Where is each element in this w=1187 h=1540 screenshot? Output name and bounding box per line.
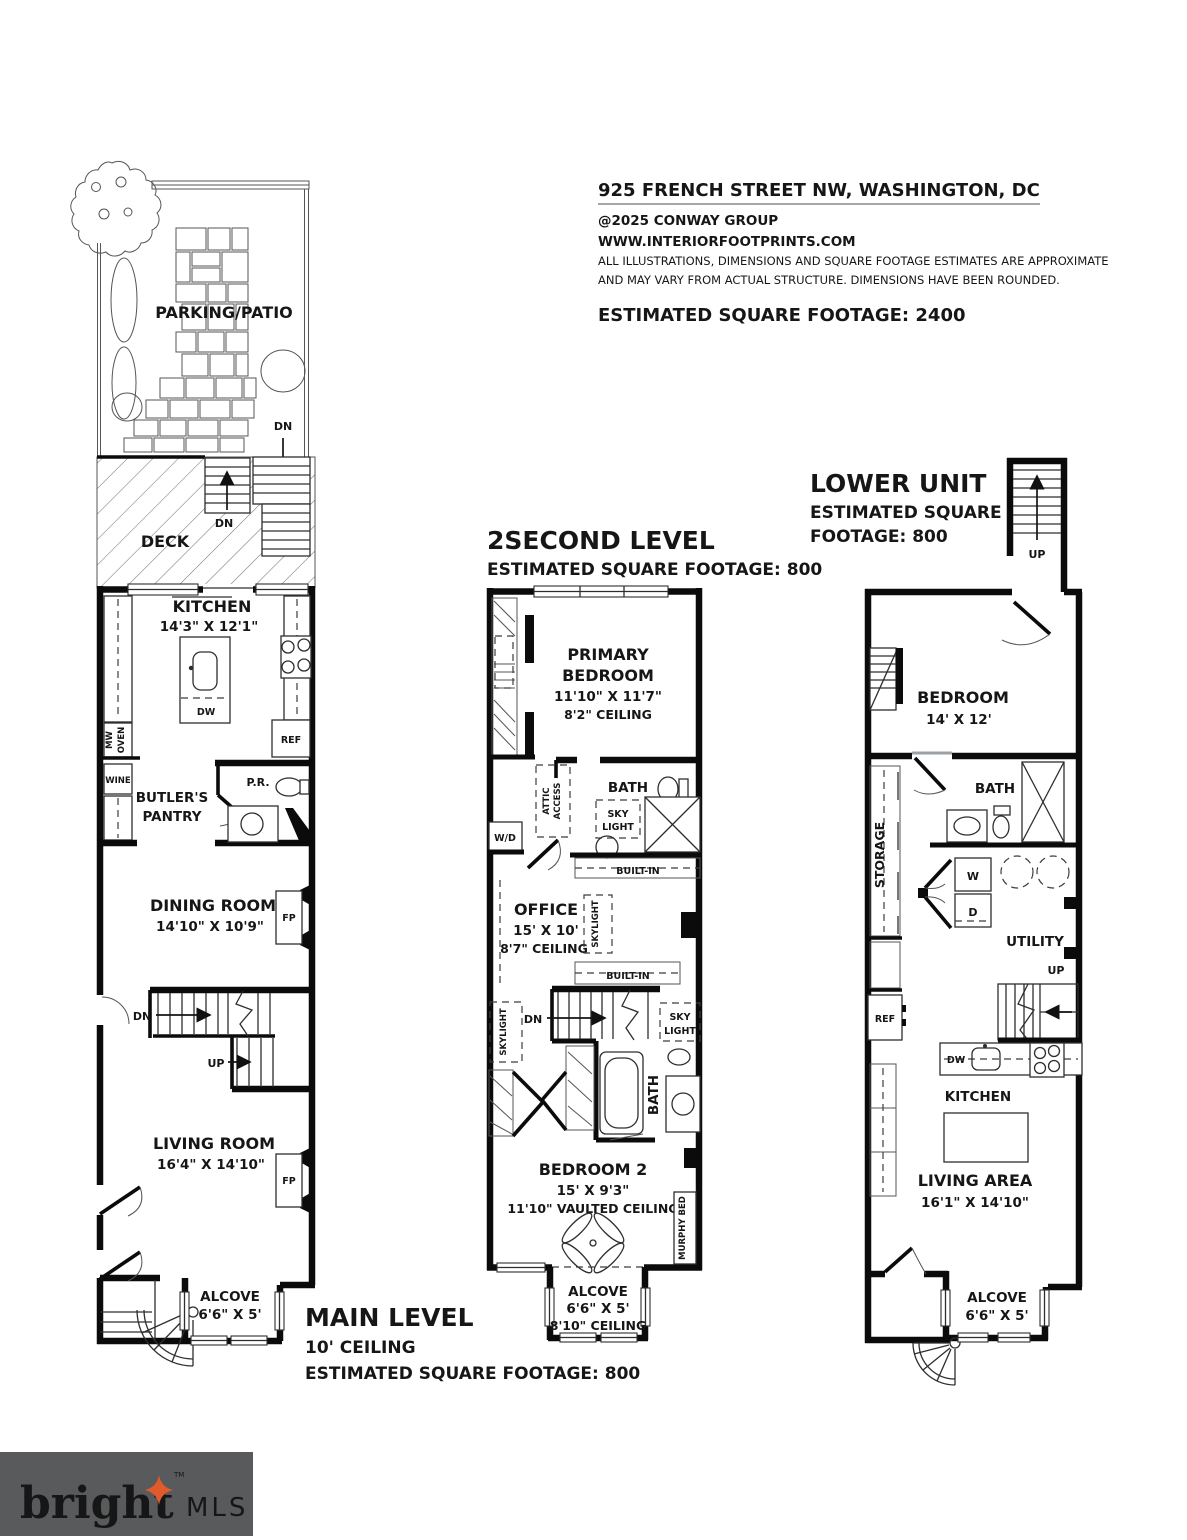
label-dining-dims: 14'10" X 10'9" bbox=[156, 919, 264, 935]
label-ref-main: REF bbox=[281, 735, 301, 746]
label-office-ceiling: 8'7" CEILING bbox=[500, 941, 588, 956]
total-sqft-label: ESTIMATED SQUARE FOOTAGE: 2400 bbox=[598, 305, 966, 326]
mls-wordmark: MLS bbox=[186, 1493, 248, 1523]
kitchen-island bbox=[944, 1113, 1028, 1162]
label-attic-1: ATTIC bbox=[542, 787, 552, 814]
label-dn-parking: DN bbox=[274, 420, 292, 433]
floorplan-sheet: 925 FRENCH STREET NW, WASHINGTON, DC @20… bbox=[0, 0, 1187, 1536]
label-wd: W/D bbox=[494, 833, 516, 844]
label-murphy-bed: MURPHY BED bbox=[678, 1196, 688, 1260]
label-lower-bedroom-dims: 14' X 12' bbox=[926, 712, 992, 728]
label-primary-2: BEDROOM bbox=[562, 666, 654, 685]
label-up-interior: UP bbox=[1048, 964, 1065, 977]
copyright-line: @2025 CONWAY GROUP bbox=[598, 213, 778, 229]
label-living-area-dims: 16'1" X 14'10" bbox=[921, 1195, 1029, 1211]
label-alcove-second-dims: 6'6" X 5' bbox=[566, 1301, 629, 1317]
shower-icon bbox=[645, 797, 700, 852]
label-wine: WINE bbox=[105, 776, 131, 786]
disclaimer-line-2: AND MAY VARY FROM ACTUAL STRUCTURE. DIME… bbox=[598, 273, 1060, 287]
label-primary-dims: 11'10" X 11'7" bbox=[554, 689, 662, 705]
label-primary-ceiling: 8'2" CEILING bbox=[564, 707, 652, 722]
trademark-symbol: TM bbox=[173, 1471, 184, 1479]
label-attic-2: ACCESS bbox=[553, 783, 563, 820]
toilet-icon bbox=[276, 778, 302, 796]
label-bath-upper: BATH bbox=[608, 780, 648, 796]
label-dn-deck: DN bbox=[215, 517, 233, 530]
main-level-ceiling: 10' CEILING bbox=[305, 1338, 416, 1358]
deck-stair-flight-upper bbox=[253, 457, 310, 504]
address-title: 925 FRENCH STREET NW, WASHINGTON, DC bbox=[598, 180, 1040, 201]
label-kitchen-lower: KITCHEN bbox=[945, 1089, 1011, 1105]
deck-area: DN DECK bbox=[97, 457, 315, 588]
label-living-dims: 16'4" X 14'10" bbox=[157, 1157, 265, 1173]
lower-unit-title: LOWER UNIT bbox=[810, 469, 986, 498]
label-office: OFFICE bbox=[514, 900, 578, 919]
label-mw: MW bbox=[105, 730, 115, 748]
label-butlers-1: BUTLER'S bbox=[136, 790, 209, 806]
deck-stair-flight-lower bbox=[262, 504, 310, 556]
label-kitchen-dims: 14'3" X 12'1" bbox=[160, 619, 259, 635]
label-alcove-main-dims: 6'6" X 5' bbox=[198, 1307, 261, 1323]
label-bedroom2: BEDROOM 2 bbox=[539, 1160, 648, 1179]
label-utility: UTILITY bbox=[1006, 934, 1064, 950]
toilet-icon bbox=[993, 816, 1009, 838]
label-skylight-mid: SKYLIGHT bbox=[591, 900, 601, 948]
label-alcove-lower: ALCOVE bbox=[967, 1290, 1027, 1306]
label-alcove-main: ALCOVE bbox=[200, 1289, 260, 1305]
label-alcove-second: ALCOVE bbox=[568, 1284, 628, 1300]
stove-icon bbox=[1030, 1043, 1064, 1077]
label-office-dims: 15' X 10' bbox=[513, 923, 579, 939]
main-level-title: MAIN LEVEL bbox=[305, 1303, 474, 1332]
website-line: WWW.INTERIORFOOTPRINTS.COM bbox=[598, 234, 856, 250]
label-deck: DECK bbox=[141, 532, 190, 551]
tub-icon bbox=[600, 1052, 643, 1134]
label-pr: P.R. bbox=[246, 776, 269, 789]
stove-icon bbox=[281, 636, 311, 678]
label-butlers-2: PANTRY bbox=[142, 809, 201, 825]
label-dryer: D bbox=[968, 906, 977, 919]
label-builtin-top: BUILT-IN bbox=[616, 866, 660, 877]
label-lower-bedroom: BEDROOM bbox=[917, 688, 1009, 707]
label-dn-stairs-main: DN bbox=[133, 1010, 151, 1023]
main-level-sqft: ESTIMATED SQUARE FOOTAGE: 800 bbox=[305, 1364, 640, 1384]
label-living: LIVING ROOM bbox=[153, 1134, 275, 1153]
label-dn-second: DN bbox=[524, 1013, 542, 1026]
label-bath-lower: BATH bbox=[646, 1075, 662, 1115]
brand-wordmark: bright bbox=[20, 1478, 174, 1529]
label-sky-stair-1: SKY bbox=[669, 1012, 690, 1023]
label-bedroom2-dims: 15' X 9'3" bbox=[557, 1183, 630, 1199]
label-sky-upper-1: SKY bbox=[607, 809, 628, 820]
label-bedroom2-ceiling: 11'10" VAULTED CEILING bbox=[507, 1201, 678, 1216]
second-level-title: 2SECOND LEVEL bbox=[487, 526, 715, 555]
label-washer: W bbox=[967, 870, 979, 883]
label-fp-dining: FP bbox=[282, 913, 295, 924]
label-skylight-left: SKYLIGHT bbox=[499, 1008, 509, 1056]
lower-unit-sqft-2: FOOTAGE: 800 bbox=[810, 527, 948, 547]
shower-icon bbox=[1022, 762, 1064, 842]
label-up-entry: UP bbox=[1029, 548, 1046, 561]
label-dw-main: DW bbox=[197, 707, 216, 718]
label-dw-lower: DW bbox=[947, 1055, 966, 1066]
label-parking-patio: PARKING/PATIO bbox=[155, 303, 293, 322]
label-living-area: LIVING AREA bbox=[918, 1171, 1033, 1190]
second-level-sqft: ESTIMATED SQUARE FOOTAGE: 800 bbox=[487, 560, 822, 580]
label-sky-stair-2: LIGHT bbox=[664, 1026, 696, 1037]
label-fp-living: FP bbox=[282, 1176, 295, 1187]
toilet-icon bbox=[668, 1049, 690, 1065]
label-dining: DINING ROOM bbox=[150, 896, 276, 915]
label-primary-1: PRIMARY bbox=[567, 645, 649, 664]
label-builtin-mid: BUILT-IN bbox=[606, 971, 650, 982]
label-lower-bath: BATH bbox=[975, 781, 1015, 797]
label-oven: OVEN bbox=[117, 727, 127, 754]
label-ref-lower: REF bbox=[875, 1014, 895, 1025]
disclaimer-line-1: ALL ILLUSTRATIONS, DIMENSIONS AND SQUARE… bbox=[598, 254, 1109, 268]
footer: bright TM MLS bbox=[0, 1452, 253, 1536]
label-alcove-second-ceiling: 8'10" CEILING bbox=[550, 1318, 646, 1333]
label-alcove-lower-dims: 6'6" X 5' bbox=[965, 1308, 1028, 1324]
label-up-stairs-main: UP bbox=[208, 1057, 225, 1070]
label-storage: STORAGE bbox=[872, 822, 887, 888]
lower-unit-sqft-1: ESTIMATED SQUARE bbox=[810, 503, 1002, 523]
label-kitchen-main: KITCHEN bbox=[173, 597, 252, 616]
label-sky-upper-2: LIGHT bbox=[602, 822, 634, 833]
